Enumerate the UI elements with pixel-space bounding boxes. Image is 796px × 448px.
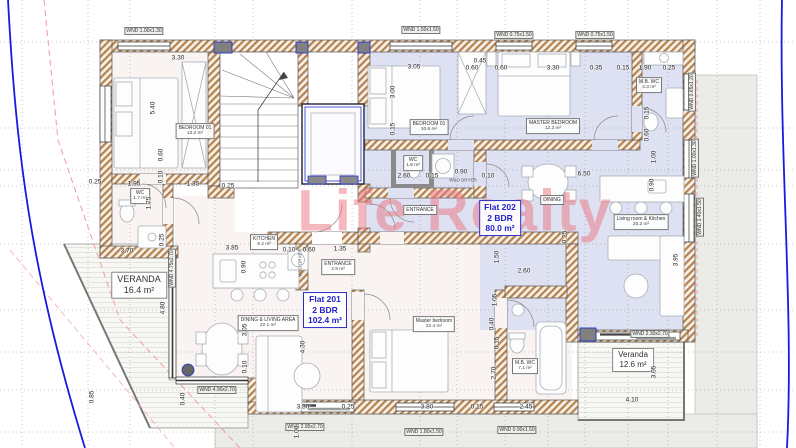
sink [220, 260, 236, 282]
dim-label: 2.70 [491, 367, 498, 380]
dim-label: 2.45 [520, 404, 533, 411]
veranda-12-area: 12.6 m² [618, 360, 648, 370]
flat-201-badge: Flat 201 2 BDR 102.4 m² [303, 292, 347, 328]
dim-label: 0.85 [89, 391, 96, 404]
dim-label: 1.05 [492, 294, 499, 307]
room-label-master-bedroom-f202: MASTER BEDROOM12.3 m² [526, 118, 580, 134]
veranda-16-area: 16.4 m² [117, 285, 161, 296]
dim-label: 3.85 [226, 245, 239, 252]
room-label-living-kitchen-f202: Living room & Kitchen20.2 m² [614, 214, 669, 230]
dim-label: 0.10 [283, 247, 296, 254]
dim-label: 3.00 [390, 86, 397, 99]
dim-label: 0.45 [474, 58, 487, 65]
toilet [120, 204, 134, 222]
dim-label: 2.60 [518, 268, 531, 275]
dim-label: 0.25 [89, 179, 102, 186]
dim-label: 0.15 [390, 123, 397, 136]
dim-label: 0.15 [494, 337, 501, 350]
dim-label: 4.30 [300, 341, 307, 354]
washer-dryer-label: W&D DRYER [449, 179, 476, 184]
dim-label: 0.25 [663, 65, 676, 72]
room-label-kitchen-f201: KITCHEN9.2 m² [250, 234, 278, 250]
flat-202-name: Flat 202 [484, 202, 516, 213]
cooktop-burner [260, 262, 266, 268]
dim-label: 0.25 [159, 234, 166, 247]
floor-plan-page: Life Realty Flat 201 2 BDR 102.4 m² Flat… [0, 0, 796, 448]
shower [666, 88, 683, 118]
staircase [220, 52, 298, 188]
dim-label: 3.05 [408, 64, 421, 71]
room-label-bedroom01-f201: BEDROOM 0113.2 m² [176, 123, 215, 139]
dim-label: 2.60 [398, 173, 411, 180]
window-label: WND 1.00x1.30 [124, 27, 163, 35]
room-label-wc-f202: WC1.6 m² [403, 155, 423, 171]
window-label: WND 1.40x1.50 [696, 197, 704, 236]
dim-label: 3.30 [172, 55, 185, 62]
dim-label: 5.40 [150, 102, 157, 115]
dim-label: 3.30 [547, 65, 560, 72]
dim-label: 1.75 [146, 197, 153, 210]
dim-label: 0.25 [562, 231, 569, 244]
dim-label: 0.90 [455, 169, 468, 176]
flat-201-bedrooms: 2 BDR [308, 305, 342, 316]
veranda-12-name: Veranda [618, 350, 648, 360]
dim-label: 6.50 [578, 171, 591, 178]
dim-label: 0.40 [489, 318, 496, 331]
dim-label: 0.90 [649, 179, 656, 192]
room-label-dining-f202: DINING [540, 195, 564, 205]
coffee-table [294, 363, 320, 389]
room-label-master-bedroom-f201: Master bedroom22.4 m² [413, 316, 455, 332]
dim-label: 1.35 [334, 246, 347, 253]
window-label: WND 0.90x1.50 [497, 426, 536, 434]
window-label: WND 4.90x2.70 [197, 386, 236, 394]
veranda-16-label: VERANDA 16.4 m² [111, 272, 167, 299]
dim-label: 3.70 [121, 248, 134, 255]
dim-label: 1.50 [494, 251, 501, 264]
veranda-16-name: VERANDA [117, 274, 161, 285]
dim-label: 0.15 [617, 65, 630, 72]
dim-label: 0.25 [342, 404, 355, 411]
floor-plan-drawing [0, 0, 796, 448]
dim-label: 1.95 [128, 181, 141, 188]
dim-label: 0.15 [471, 404, 484, 411]
chair [522, 166, 533, 177]
flat-202-area: 80.0 m² [484, 223, 516, 234]
window-label: WND 0.75x1.50 [494, 31, 533, 39]
dim-label: 3.80 [421, 404, 434, 411]
dim-label: 1.90 [639, 65, 652, 72]
window-label: WND 1.80x1.50 [404, 428, 443, 436]
stool [610, 202, 622, 214]
veranda-12-label: Veranda 12.6 m² [612, 348, 654, 372]
window-label: WND 0.75x1.50 [575, 31, 614, 39]
dim-label: 0.60 [466, 65, 479, 72]
kitchen-counter [600, 176, 684, 202]
bathtub [536, 322, 566, 394]
dim-label: 3.95 [673, 254, 680, 267]
dim-label: 0.10 [242, 361, 249, 374]
flat-202-bedrooms: 2 BDR [484, 213, 516, 224]
dim-label: 1.00 [651, 151, 658, 164]
dim-label: 0.10 [158, 171, 165, 184]
dim-label: 3.05 [651, 366, 658, 379]
dim-label: 0.60 [495, 65, 508, 72]
column [182, 364, 194, 376]
dim-label: 4.80 [160, 302, 167, 315]
stool [231, 289, 243, 301]
flat-201-name: Flat 201 [308, 294, 342, 305]
window-label: WND 2.95x2.70 [285, 423, 324, 431]
window-label: WND 1.50x1.50 [401, 26, 440, 34]
dim-label: 1.35 [187, 181, 200, 188]
dim-label: 0.15 [426, 173, 439, 180]
window-label: WND 4.75x2.70 [168, 248, 176, 287]
dim-label: 0.40 [180, 393, 187, 406]
dim-label: 3.05 [242, 324, 249, 337]
window-label: WND 2.30x2.70 [630, 330, 669, 338]
dim-label: 0.60 [158, 149, 165, 162]
window-label: WND 0.65x1.20 [688, 72, 696, 111]
coffee-table [624, 274, 648, 298]
dim-label: 0.60 [303, 247, 316, 254]
dim-label: 3.30 [297, 404, 310, 411]
window-label: WND 1.00x1.30 [691, 138, 699, 177]
dim-label: 0.25 [222, 183, 235, 190]
flat-202-badge: Flat 202 2 BDR 80.0 m² [479, 200, 521, 236]
room-label-entrance-f202: ENTRANCE [403, 205, 437, 215]
elevator-door [340, 176, 358, 184]
dim-label: 0.15 [644, 107, 651, 120]
dim-label: 0.90 [241, 261, 248, 274]
elevator-shaft [302, 104, 364, 184]
dim-label: 0.10 [482, 173, 495, 180]
chair [196, 332, 206, 344]
dining-table [202, 323, 242, 375]
dim-label: 0.60 [644, 129, 651, 142]
dim-label: 1.00 [294, 426, 301, 439]
flat-201-area: 102.4 m² [308, 315, 342, 326]
washbasin [512, 304, 524, 316]
elevator-door [308, 176, 326, 184]
room-label-bedroom01-f202: BEDROOM 0110.6 m² [410, 119, 449, 135]
dim-label: 0.35 [590, 65, 603, 72]
dim-label: 4.10 [626, 397, 639, 404]
room-label-mbwc-f201: M.B. WC7.1 m² [512, 358, 538, 374]
room-label-entrance-f201: ENTRANCE2.9 m² [321, 259, 355, 275]
room-label-mbwc-f202: M.B. WC4.3 m² [636, 77, 662, 93]
